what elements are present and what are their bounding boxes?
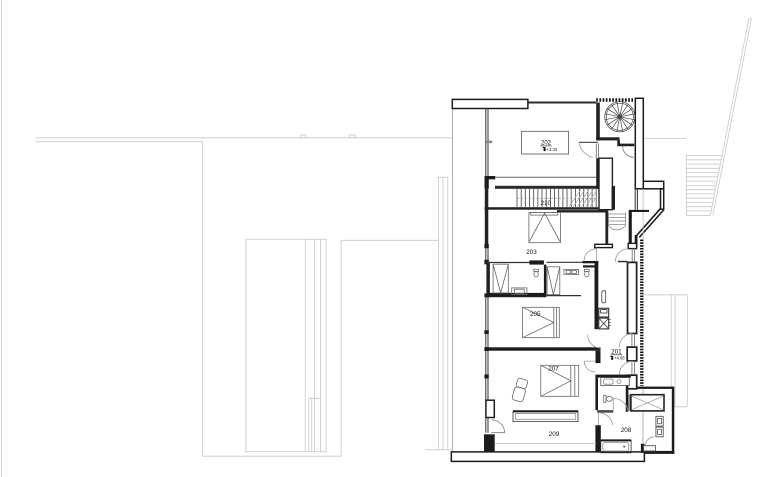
svg-text:210: 210 — [540, 200, 551, 207]
svg-text:+3.33: +3.33 — [547, 147, 558, 152]
svg-text:209: 209 — [549, 431, 560, 438]
svg-text:201: 201 — [611, 349, 622, 356]
svg-text:207: 207 — [548, 366, 559, 373]
svg-text:203: 203 — [526, 249, 537, 256]
svg-text:205: 205 — [530, 311, 541, 318]
svg-text:+4.08: +4.08 — [614, 356, 625, 361]
svg-text:208: 208 — [621, 427, 632, 434]
